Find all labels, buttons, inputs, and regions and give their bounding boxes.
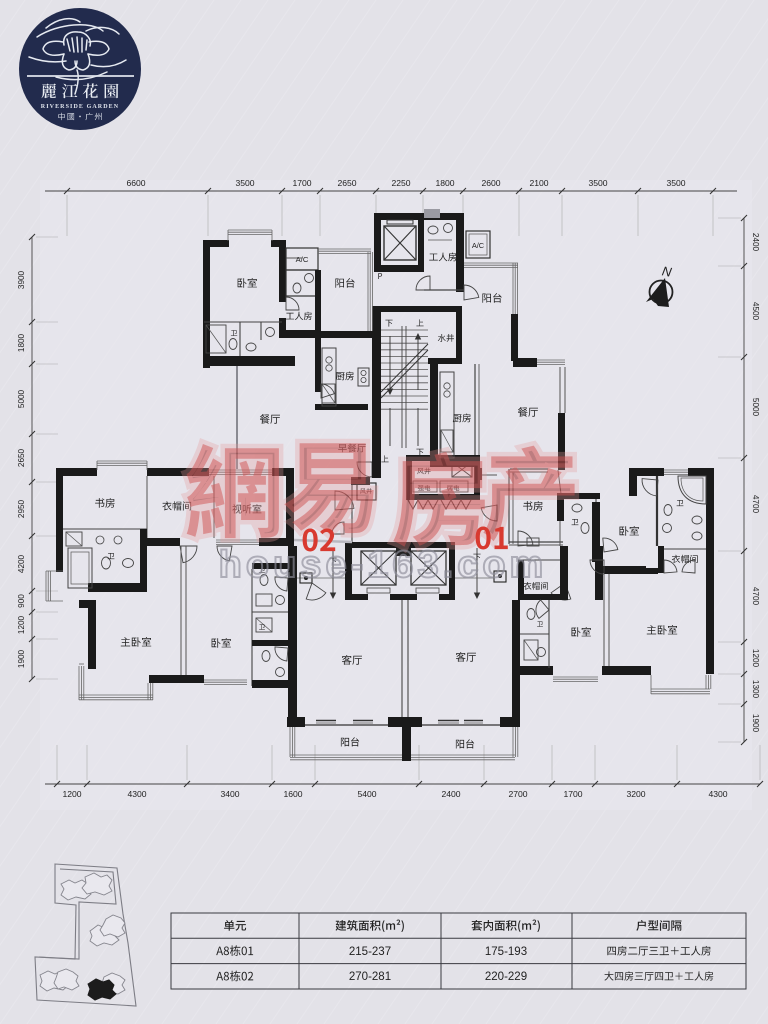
svg-text:A/C: A/C — [472, 241, 485, 250]
svg-text:RIVERSIDE GARDEN: RIVERSIDE GARDEN — [41, 104, 119, 110]
svg-text:4200: 4200 — [17, 554, 26, 573]
svg-text:4300: 4300 — [708, 789, 727, 799]
svg-text:3500: 3500 — [235, 178, 254, 188]
svg-text:house-163.com: house-163.com — [219, 544, 548, 586]
svg-text:900: 900 — [17, 594, 26, 608]
svg-text:3500: 3500 — [588, 178, 607, 188]
svg-text:3900: 3900 — [17, 270, 26, 289]
svg-text:215-237: 215-237 — [349, 946, 391, 958]
svg-text:1200: 1200 — [751, 649, 760, 668]
svg-text:1700: 1700 — [292, 178, 311, 188]
svg-text:2650: 2650 — [17, 448, 26, 467]
svg-text:4700: 4700 — [751, 587, 760, 606]
svg-text:3400: 3400 — [220, 789, 239, 799]
svg-text:4700: 4700 — [751, 495, 760, 514]
svg-text:2650: 2650 — [337, 178, 356, 188]
svg-text:1700: 1700 — [563, 789, 582, 799]
svg-text:A/C: A/C — [296, 255, 309, 264]
svg-text:220-229: 220-229 — [485, 971, 527, 983]
svg-text:4300: 4300 — [127, 789, 146, 799]
svg-text:4500: 4500 — [751, 302, 760, 321]
svg-text:1900: 1900 — [17, 649, 26, 668]
svg-text:2600: 2600 — [481, 178, 500, 188]
svg-text:1600: 1600 — [283, 789, 302, 799]
svg-text:2400: 2400 — [751, 233, 760, 252]
svg-text:2700: 2700 — [508, 789, 527, 799]
svg-text:5000: 5000 — [751, 398, 760, 417]
svg-text:6600: 6600 — [126, 178, 145, 188]
svg-text:1300: 1300 — [751, 680, 760, 699]
svg-text:1200: 1200 — [62, 789, 81, 799]
svg-text:5400: 5400 — [357, 789, 376, 799]
svg-text:1800: 1800 — [435, 178, 454, 188]
svg-text:175-193: 175-193 — [485, 946, 527, 958]
svg-text:3500: 3500 — [666, 178, 685, 188]
svg-text:270-281: 270-281 — [349, 971, 391, 983]
svg-text:3200: 3200 — [626, 789, 645, 799]
svg-text:1900: 1900 — [751, 714, 760, 733]
svg-text:1200: 1200 — [17, 615, 26, 634]
svg-text:2950: 2950 — [17, 499, 26, 518]
svg-text:1800: 1800 — [17, 333, 26, 352]
svg-text:2400: 2400 — [441, 789, 460, 799]
svg-text:2250: 2250 — [391, 178, 410, 188]
svg-text:2100: 2100 — [529, 178, 548, 188]
svg-text:5000: 5000 — [17, 389, 26, 408]
